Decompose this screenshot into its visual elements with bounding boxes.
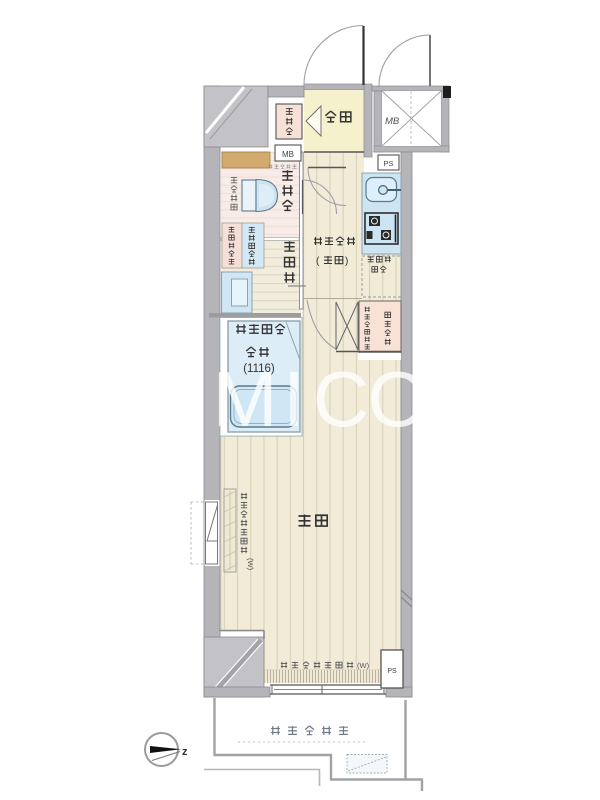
svg-text:I: I xyxy=(283,355,305,443)
svg-text:PS: PS xyxy=(383,159,393,168)
svg-text:(W): (W) xyxy=(246,558,255,571)
svg-text:M: M xyxy=(213,355,278,443)
svg-text:): ) xyxy=(345,256,348,267)
svg-text:PS: PS xyxy=(387,668,397,675)
svg-text:(W): (W) xyxy=(357,661,370,670)
svg-text:O: O xyxy=(368,355,429,443)
svg-text:MB: MB xyxy=(282,150,294,159)
svg-text:C: C xyxy=(313,355,369,443)
svg-text:MB: MB xyxy=(385,116,400,127)
svg-text:z: z xyxy=(182,746,188,758)
